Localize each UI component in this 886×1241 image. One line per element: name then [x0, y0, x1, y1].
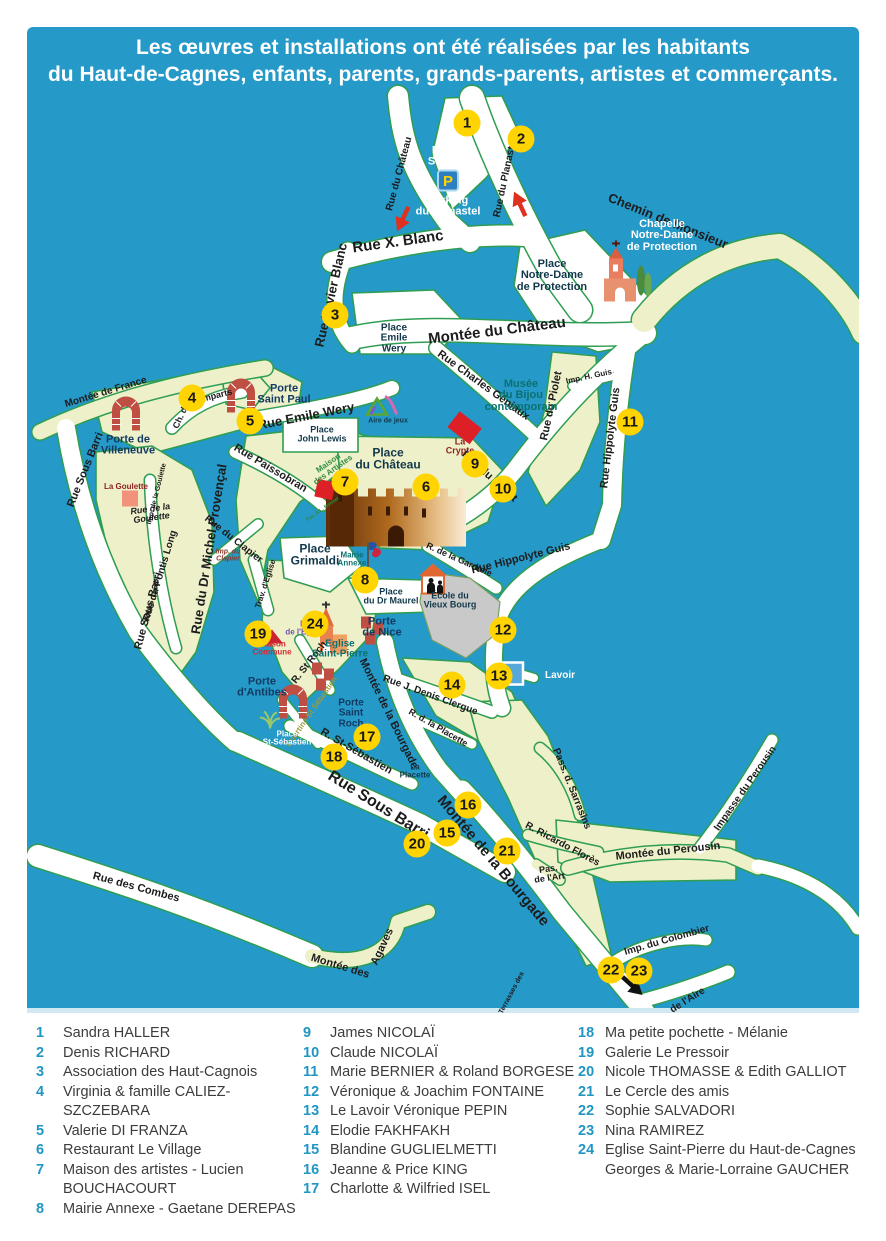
legend-entry-22: 22Sophie SALVADORI	[578, 1102, 870, 1122]
map-marker-22: 22	[598, 957, 625, 984]
legend-entry-number: 10	[303, 1044, 330, 1064]
legend-entry-20: 20Nicole THOMASSE & Edith GALLIOT	[578, 1063, 870, 1083]
legend-entry-name: Claude NICOLAÏ	[330, 1044, 579, 1064]
legend-column-2: 9James NICOLAÏ10Claude NICOLAÏ11Marie BE…	[303, 1024, 579, 1200]
legend-entry-number: 1	[36, 1024, 63, 1044]
legend-entry-16: 16Jeanne & Price KING	[303, 1161, 579, 1181]
legend-entry-19: 19Galerie Le Pressoir	[578, 1044, 870, 1064]
legend-entry-number: 13	[303, 1102, 330, 1122]
map-marker-13: 13	[486, 663, 513, 690]
legend-entry-name: Valerie DI FRANZA	[63, 1122, 306, 1142]
map-marker-9: 9	[462, 451, 489, 478]
legend-entry-18: 18Ma petite pochette - Mélanie	[578, 1024, 870, 1044]
legend-entry-10: 10Claude NICOLAÏ	[303, 1044, 579, 1064]
legend-entry-number: 24	[578, 1141, 605, 1180]
map-marker-11: 11	[617, 409, 644, 436]
legend-entry-name: Véronique & Joachim FONTAINE	[330, 1083, 579, 1103]
map-marker-14: 14	[439, 672, 466, 699]
map-marker-2: 2	[508, 126, 535, 153]
map-marker-8: 8	[352, 567, 379, 594]
legend-entry-name: Galerie Le Pressoir	[605, 1044, 870, 1064]
legend-entry-21: 21Le Cercle des amis	[578, 1083, 870, 1103]
legend-entry-5: 5Valerie DI FRANZA	[36, 1122, 306, 1142]
legend-entry-3: 3Association des Haut-Cagnois	[36, 1063, 306, 1083]
legend-entry-name: Nina RAMIREZ	[605, 1122, 870, 1142]
legend-entry-number: 6	[36, 1141, 63, 1161]
map-marker-16: 16	[455, 792, 482, 819]
legend-entry-6: 6Restaurant Le Village	[36, 1141, 306, 1161]
map-marker-23: 23	[626, 958, 653, 985]
legend-entry-number: 4	[36, 1083, 63, 1122]
map-marker-20: 20	[404, 831, 431, 858]
legend-entry-number: 21	[578, 1083, 605, 1103]
legend-entry-15: 15Blandine GUGLIELMETTI	[303, 1141, 579, 1161]
legend-column-1: 1Sandra HALLER2Denis RICHARD3Association…	[36, 1024, 306, 1219]
map-marker-19: 19	[245, 621, 272, 648]
porte-villeneuve-arch-icon	[109, 391, 143, 436]
legend-entry-name: Le Cercle des amis	[605, 1083, 870, 1103]
legend-entry-9: 9James NICOLAÏ	[303, 1024, 579, 1044]
legend-entry-name: Eglise Saint-Pierre du Haut-de-Cagnes Ge…	[605, 1141, 870, 1180]
legend-entry-number: 22	[578, 1102, 605, 1122]
legend-entry-2: 2Denis RICHARD	[36, 1044, 306, 1064]
legend-entry-name: Sophie SALVADORI	[605, 1102, 870, 1122]
page: Les œuvres et installations ont été réal…	[0, 0, 886, 1241]
legend-entry-23: 23Nina RAMIREZ	[578, 1122, 870, 1142]
legend-entry-11: 11Marie BERNIER & Roland BORGESE	[303, 1063, 579, 1083]
map-marker-18: 18	[321, 744, 348, 771]
map-marker-24: 24	[302, 611, 329, 638]
legend-entry-name: Maison des artistes - Lucien BOUCHACOURT	[63, 1161, 306, 1200]
map-bottom-edge	[27, 1008, 859, 1013]
legend-entry-number: 12	[303, 1083, 330, 1103]
legend-entry-name: Marie BERNIER & Roland BORGESE	[330, 1063, 579, 1083]
one-way-arrow-icon	[388, 204, 418, 239]
legend-entry-number: 19	[578, 1044, 605, 1064]
legend-column-3: 18Ma petite pochette - Mélanie19Galerie …	[578, 1024, 870, 1180]
map-title-line2: du Haut-de-Cagnes, enfants, parents, gra…	[27, 61, 859, 88]
la-crypte-marker	[441, 410, 487, 453]
legend-entry-number: 20	[578, 1063, 605, 1083]
map-marker-17: 17	[354, 724, 381, 751]
map-marker-21: 21	[494, 838, 521, 865]
map-marker-4: 4	[179, 385, 206, 412]
legend-entry-name: Elodie FAKHFAKH	[330, 1122, 579, 1142]
legend-entry-number: 8	[36, 1200, 63, 1220]
legend-entry-number: 2	[36, 1044, 63, 1064]
legend-entry-number: 16	[303, 1161, 330, 1181]
porte-de-nice-bricks-icon	[359, 617, 385, 652]
legend-entry-name: Association des Haut-Cagnois	[63, 1063, 306, 1083]
legend-entry-number: 14	[303, 1122, 330, 1142]
legend-entry-1: 1Sandra HALLER	[36, 1024, 306, 1044]
legend-entry-name: Virginia & famille CALIEZ-SZCZEBARA	[63, 1083, 306, 1122]
svg-text:P: P	[443, 173, 453, 190]
legend-entry-number: 9	[303, 1024, 330, 1044]
map-marker-7: 7	[332, 469, 359, 496]
legend-entry-name: Le Lavoir Véronique PEPIN	[330, 1102, 579, 1122]
legend-entry-7: 7Maison des artistes - Lucien BOUCHACOUR…	[36, 1161, 306, 1200]
map-marker-10: 10	[490, 476, 517, 503]
map-marker-6: 6	[413, 474, 440, 501]
legend-entry-name: Blandine GUGLIELMETTI	[330, 1141, 579, 1161]
legend-entry-name: James NICOLAÏ	[330, 1024, 579, 1044]
legend-entry-name: Ma petite pochette - Mélanie	[605, 1024, 870, 1044]
legend-entry-name: Mairie Annexe - Gaetane DEREPAS	[63, 1200, 306, 1220]
legend-entry-14: 14Elodie FAKHFAKH	[303, 1122, 579, 1142]
legend-entry-17: 17Charlotte & Wilfried ISEL	[303, 1180, 579, 1200]
legend-entry-name: Sandra HALLER	[63, 1024, 306, 1044]
parking-icon: P	[437, 170, 459, 197]
legend-entry-number: 7	[36, 1161, 63, 1200]
map-title-line1: Les œuvres et installations ont été réal…	[27, 34, 859, 61]
legend-entry-24: 24Eglise Saint-Pierre du Haut-de-Cagnes …	[578, 1141, 870, 1180]
legend-entry-number: 18	[578, 1024, 605, 1044]
legend-entry-13: 13Le Lavoir Véronique PEPIN	[303, 1102, 579, 1122]
legend-entry-8: 8Mairie Annexe - Gaetane DEREPAS	[36, 1200, 306, 1220]
ecole-vieux-bourg-icon	[417, 562, 457, 601]
map-marker-15: 15	[434, 820, 461, 847]
legend-entry-number: 11	[303, 1063, 330, 1083]
la-goulette-marker	[121, 490, 139, 513]
map-marker-3: 3	[322, 302, 349, 329]
legend-entry-4: 4Virginia & famille CALIEZ-SZCZEBARA	[36, 1083, 306, 1122]
legend-entry-name: Jeanne & Price KING	[330, 1161, 579, 1181]
palm-icon	[259, 710, 281, 735]
legend-entry-name: Nicole THOMASSE & Edith GALLIOT	[605, 1063, 870, 1083]
map-marker-1: 1	[454, 110, 481, 137]
legend-entry-number: 23	[578, 1122, 605, 1142]
one-way-arrow-icon	[505, 190, 535, 225]
legend-entry-name: Denis RICHARD	[63, 1044, 306, 1064]
legend-entry-12: 12Véronique & Joachim FONTAINE	[303, 1083, 579, 1103]
playground-icon	[365, 393, 399, 422]
porte-antibes-arch-icon	[276, 679, 310, 724]
porte-saint-roch-bricks-icon	[310, 663, 336, 698]
map-marker-12: 12	[490, 617, 517, 644]
legend-entry-name: Restaurant Le Village	[63, 1141, 306, 1161]
legend-entry-name: Charlotte & Wilfried ISEL	[330, 1180, 579, 1200]
legend-entry-number: 3	[36, 1063, 63, 1083]
legend-entry-number: 17	[303, 1180, 330, 1200]
map-marker-5: 5	[237, 408, 264, 435]
chapel-notre-dame-icon	[601, 241, 653, 308]
legend-entry-number: 5	[36, 1122, 63, 1142]
map-title: Les œuvres et installations ont été réal…	[27, 34, 859, 88]
legend-entry-number: 15	[303, 1141, 330, 1161]
